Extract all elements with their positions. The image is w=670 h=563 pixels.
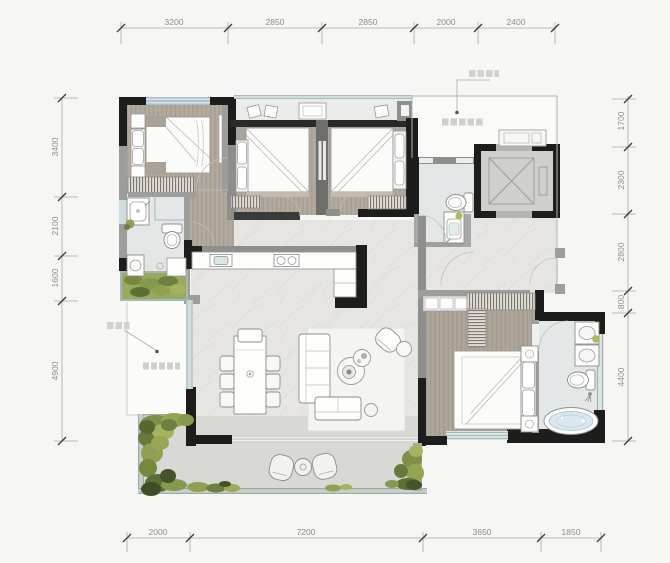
- svg-text:4900: 4900: [50, 361, 60, 380]
- svg-text:800: 800: [616, 295, 626, 309]
- svg-text:1600: 1600: [50, 268, 60, 287]
- svg-text:1700: 1700: [616, 111, 626, 130]
- svg-text:2000: 2000: [437, 17, 456, 27]
- svg-text:2000: 2000: [149, 527, 168, 537]
- svg-text:7200: 7200: [297, 527, 316, 537]
- svg-text:3200: 3200: [165, 17, 184, 27]
- svg-text:3650: 3650: [473, 527, 492, 537]
- svg-text:2850: 2850: [359, 17, 378, 27]
- svg-text:2800: 2800: [616, 242, 626, 261]
- svg-text:2400: 2400: [507, 17, 526, 27]
- svg-text:2300: 2300: [616, 170, 626, 189]
- svg-text:1850: 1850: [562, 527, 581, 537]
- svg-text:2850: 2850: [266, 17, 285, 27]
- svg-text:3400: 3400: [50, 137, 60, 156]
- svg-text:4400: 4400: [616, 367, 626, 386]
- svg-text:2100: 2100: [50, 216, 60, 235]
